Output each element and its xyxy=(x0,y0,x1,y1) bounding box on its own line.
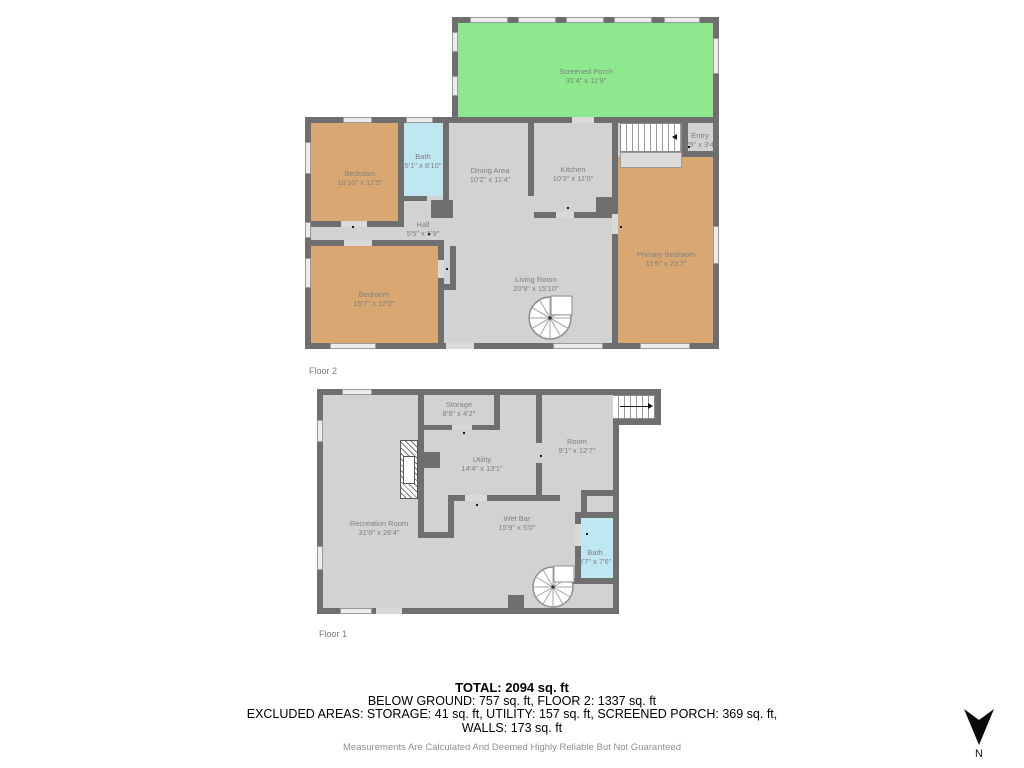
window xyxy=(713,38,719,74)
door-opening xyxy=(556,212,574,218)
wall-segment xyxy=(404,196,427,201)
stair-landing xyxy=(620,152,682,168)
door-marker-dot xyxy=(352,226,354,228)
window xyxy=(305,142,311,174)
window xyxy=(470,17,508,23)
room-label-storage: Storage 8'9" x 4'2" xyxy=(443,400,476,418)
window xyxy=(317,420,323,442)
north-arrow-icon xyxy=(963,708,995,746)
door-opening xyxy=(575,524,581,546)
room-label-primary-bedroom: Primary Bedroom 11'6" x 23'7" xyxy=(637,250,695,268)
window xyxy=(664,17,700,23)
door-marker-dot xyxy=(620,226,622,228)
door-opening xyxy=(438,260,444,278)
support-post xyxy=(508,595,524,609)
door-marker-dot xyxy=(567,207,569,209)
room-label-bedroom-bottom: Bedroom 15'7" x 12'0" xyxy=(353,290,394,308)
wall-segment xyxy=(398,123,404,221)
stairs-direction-arrow-icon xyxy=(672,134,677,140)
door-marker-dot xyxy=(540,455,542,457)
spiral-staircase xyxy=(531,565,575,609)
window xyxy=(452,76,458,96)
room-label-utility: Utility 14'4" x 13'1" xyxy=(461,455,502,473)
door-opening xyxy=(612,214,618,234)
north-label: N xyxy=(963,748,995,760)
window xyxy=(343,117,372,123)
wall-segment xyxy=(444,284,456,290)
room-label-bedroom-top: Bedroom 10'10" x 12'5" xyxy=(337,169,382,187)
area-summary: TOTAL: 2094 sq. ft BELOW GROUND: 757 sq.… xyxy=(0,681,1024,735)
room-label-living-room: Living Room 20'9" x 15'10" xyxy=(513,275,558,293)
window xyxy=(330,343,376,349)
door-opening xyxy=(344,240,372,246)
area-line-excluded: EXCLUDED AREAS: STORAGE: 41 sq. ft, UTIL… xyxy=(0,708,1024,722)
area-line-floors: BELOW GROUND: 757 sq. ft, FLOOR 2: 1337 … xyxy=(0,695,1024,709)
room-label-wet-bar: Wet Bar 15'9" x 5'0" xyxy=(499,514,536,532)
window xyxy=(518,17,556,23)
floor-plan-page: Screened Porch 31'4" x 11'9" Bedroom 10'… xyxy=(0,0,1024,768)
wall-segment xyxy=(581,496,587,512)
floor2-label: Floor 2 xyxy=(309,366,337,376)
door-marker-dot xyxy=(476,504,478,506)
area-line-walls: WALLS: 173 sq. ft xyxy=(0,722,1024,736)
spiral-staircase xyxy=(527,295,573,341)
wall-segment xyxy=(418,532,454,538)
window xyxy=(614,17,652,23)
room-label-hall: Hall 5'5" x 5'9" xyxy=(407,220,440,238)
window xyxy=(342,389,372,395)
door-marker-dot xyxy=(446,268,448,270)
wall-segment xyxy=(311,240,444,246)
door-opening xyxy=(341,221,367,227)
door-opening xyxy=(465,495,487,501)
door-marker-dot xyxy=(586,533,588,535)
window xyxy=(452,32,458,52)
door-opening xyxy=(376,608,402,614)
door-opening xyxy=(446,343,474,349)
door-opening xyxy=(452,425,472,430)
door-marker-dot xyxy=(463,432,465,434)
window xyxy=(305,258,311,288)
window xyxy=(406,117,433,123)
stairs-direction-arrow-icon xyxy=(648,403,653,409)
window xyxy=(713,226,719,264)
room-label-dining-area: Dining Area 10'2" x 11'4" xyxy=(470,166,511,184)
wall-segment xyxy=(431,200,453,218)
room-label-recreation-room: Recreation Room 31'0" x 26'4" xyxy=(350,519,408,537)
window xyxy=(566,17,604,23)
stairs-direction-arrow-icon xyxy=(620,406,648,407)
window xyxy=(553,343,603,349)
chimney-core xyxy=(403,456,415,484)
room-label-entry: Entry 3'5" x 3'4" xyxy=(684,131,717,149)
room-label-kitchen: Kitchen 10'3" x 11'0" xyxy=(553,165,594,183)
wall-segment xyxy=(682,151,719,157)
window xyxy=(305,222,311,238)
measurement-disclaimer: Measurements Are Calculated And Deemed H… xyxy=(0,742,1024,753)
floor1-label: Floor 1 xyxy=(319,629,347,639)
room-label-screened-porch: Screened Porch 31'4" x 11'9" xyxy=(559,67,613,85)
room-label-bath-floor1: Bath 3'7" x 7'6" xyxy=(579,548,612,566)
wall-segment xyxy=(536,463,542,498)
door-opening xyxy=(572,117,594,123)
window xyxy=(640,343,690,349)
wall-segment xyxy=(424,452,440,468)
room-label-bath-floor2: Bath 5'1" x 8'10" xyxy=(405,152,442,170)
wall-segment xyxy=(494,395,500,430)
total-area: TOTAL: 2094 sq. ft xyxy=(0,681,1024,695)
window xyxy=(340,608,372,614)
room-label-room: Room 9'1" x 12'7" xyxy=(559,437,596,455)
wall-segment xyxy=(528,123,534,196)
window xyxy=(317,546,323,570)
wall-segment xyxy=(536,395,542,443)
